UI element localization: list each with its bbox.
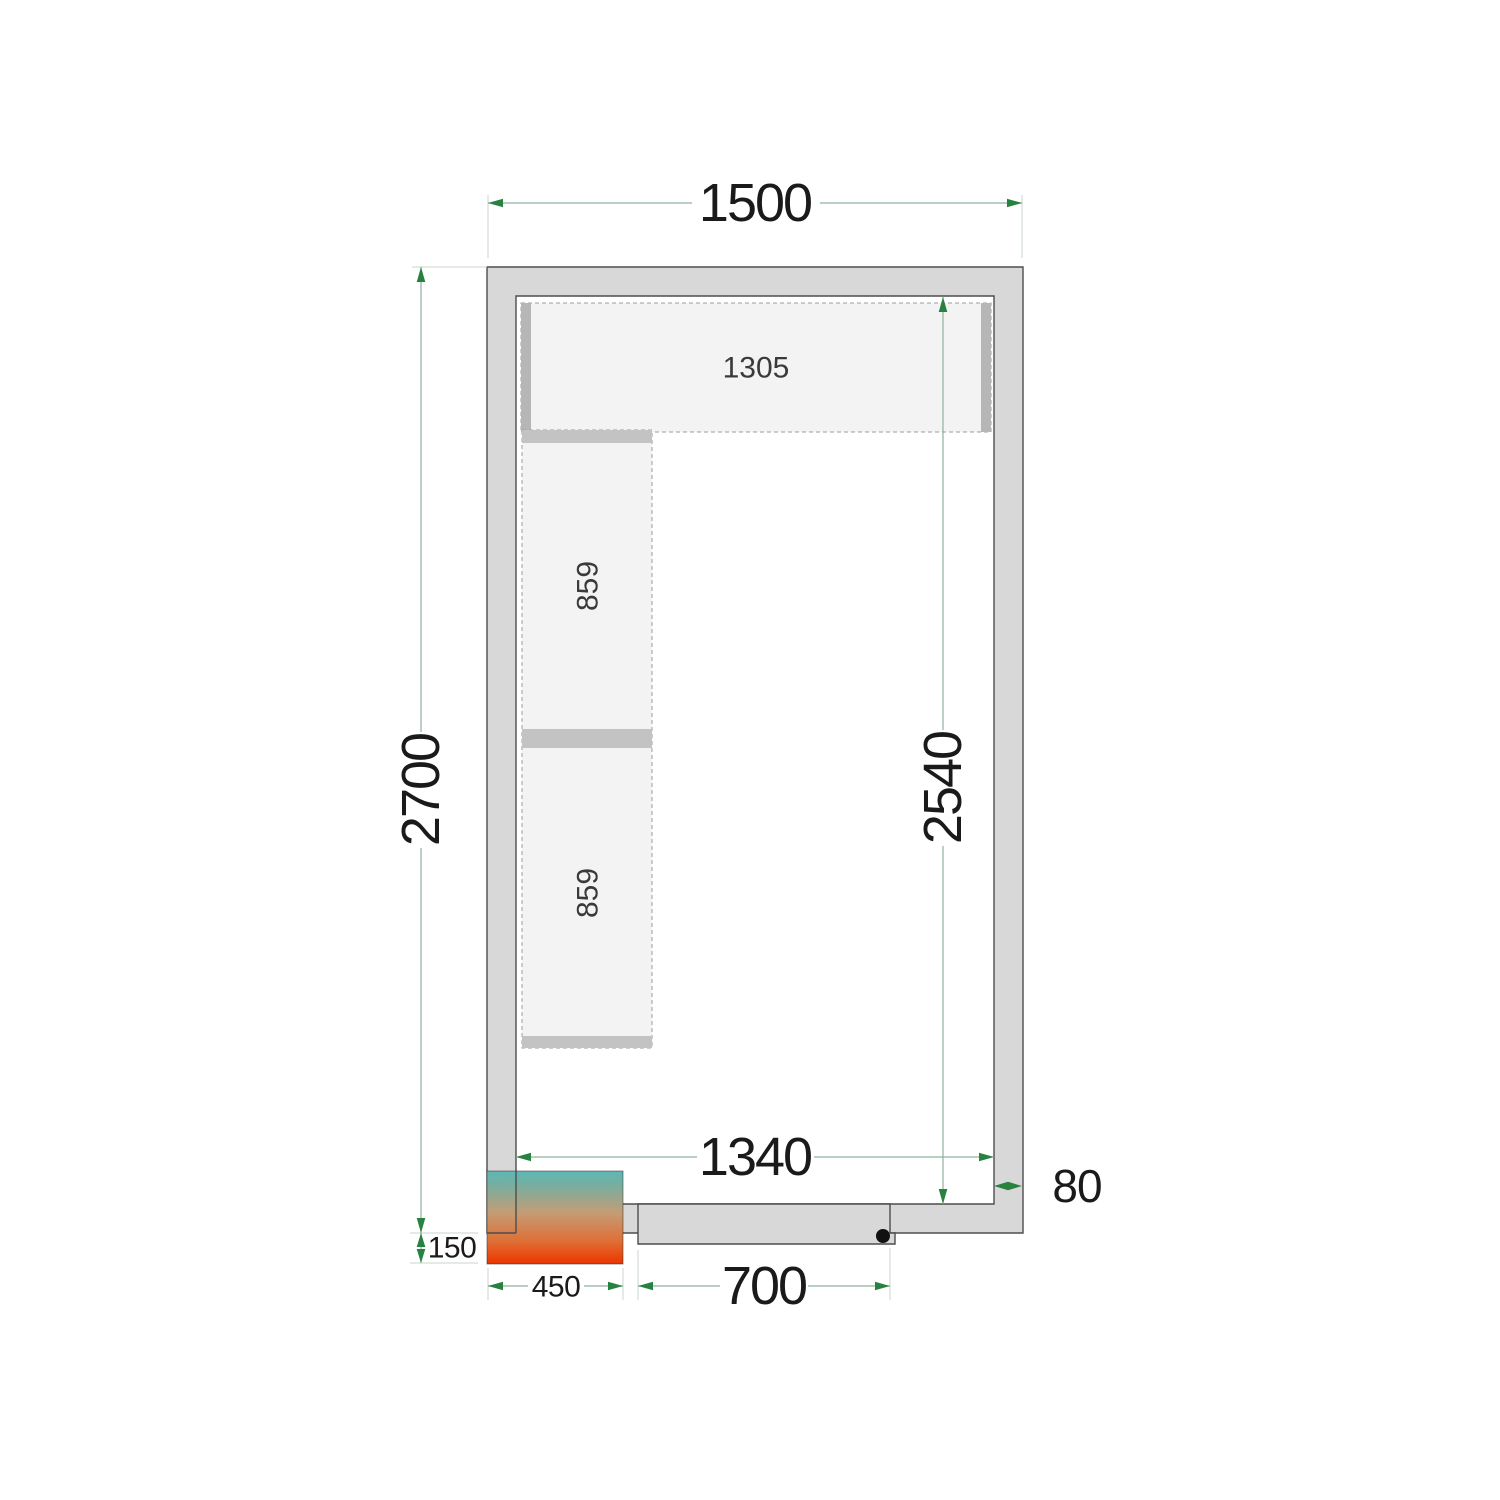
arrow-up-icon [417, 267, 426, 282]
arrow-left-icon [488, 1282, 503, 1291]
top-shelf-length-label: 1305 [723, 352, 790, 385]
dimension-unit-width: 450 [488, 1268, 623, 1304]
left-shelf-cap-bottom [522, 1036, 652, 1048]
door-width-label: 700 [722, 1256, 806, 1316]
arrow-right-icon [608, 1282, 623, 1291]
dimension-inner-depth: 2540 [913, 297, 973, 1204]
arrow-left-icon [516, 1153, 531, 1162]
inner-width-label: 1340 [699, 1127, 811, 1187]
left-shelf-column [522, 430, 652, 1048]
arrow-left-icon [638, 1282, 653, 1291]
arrow-up-icon [417, 1233, 426, 1247]
left-shelf-length-label-1: 859 [572, 561, 605, 611]
top-shelf-support-right [981, 303, 991, 432]
inner-depth-label: 2540 [913, 732, 973, 844]
arrow-right-icon [875, 1282, 890, 1291]
arrow-down-icon [939, 1189, 948, 1204]
left-shelf-length-label-2: 859 [572, 868, 605, 918]
wall-thickness-label: 80 [1052, 1160, 1101, 1212]
top-shelf-support-left [521, 303, 531, 432]
arrow-down-icon [417, 1249, 426, 1263]
door-handle-dot [876, 1229, 890, 1243]
left-shelf-divider [522, 729, 652, 748]
arrow-right-icon [1007, 199, 1022, 208]
dimension-outer-depth: 2700 [391, 267, 487, 1233]
floor-plan-drawing: 1500 2700 2540 1340 80 700 450 [0, 0, 1500, 1500]
arrow-down-icon [417, 1218, 426, 1233]
dimension-unit-offset: 150 [410, 1232, 478, 1265]
door-slab [638, 1204, 895, 1244]
cooling-unit [487, 1171, 623, 1264]
arrow-right-icon [979, 1153, 994, 1162]
dimension-outer-width: 1500 [488, 173, 1022, 258]
left-shelf-cap-top [522, 430, 652, 443]
arrow-left-icon [488, 199, 503, 208]
outer-width-label: 1500 [699, 173, 811, 233]
unit-width-label: 450 [532, 1271, 581, 1304]
unit-offset-label: 150 [428, 1232, 477, 1265]
dimension-door-width: 700 [638, 1248, 890, 1316]
outer-depth-label: 2700 [391, 734, 451, 846]
floor-plan-canvas: 1500 2700 2540 1340 80 700 450 [0, 0, 1500, 1500]
